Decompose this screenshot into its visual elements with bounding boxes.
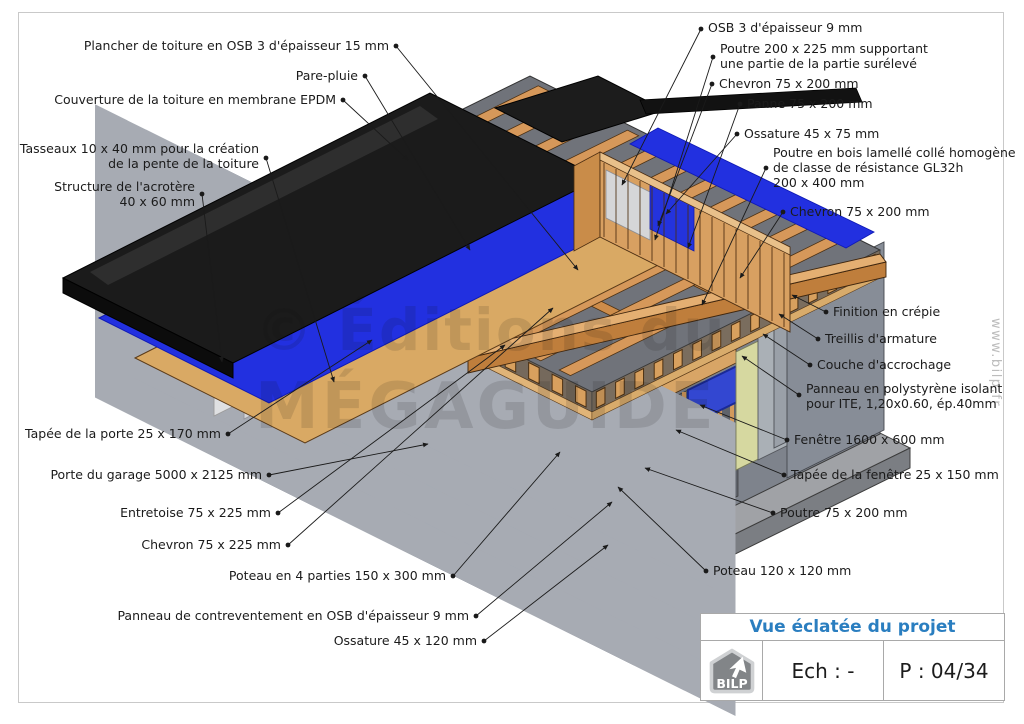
label-couverture-epdm: Couverture de la toiture en membrane EPD… [54,92,336,107]
label-chevron-75-225: Chevron 75 x 225 mm [141,537,281,552]
scale-value: Ech : - [763,641,884,700]
label-acrotere: Structure de l'acrotère 40 x 60 mm [54,179,195,209]
label-poutre-gl32h: Poutre en bois lamellé collé homogène de… [773,145,1016,190]
label-poutre-75-200: Poutre 75 x 200 mm [780,505,908,520]
label-contreventement: Panneau de contreventement en OSB d'épai… [117,608,469,623]
drawing-title: Vue éclatée du projet [701,614,1004,641]
svg-text:BILP: BILP [716,675,747,690]
label-couche-accrochage: Couche d'accrochage [817,357,951,372]
label-panne: Panne 75 x 200 mm [747,96,873,111]
label-fenetre: Fenêtre 1600 x 600 mm [794,432,945,447]
title-block: Vue éclatée du projet BILP Ech : - P : 0… [700,613,1005,701]
label-ossature-45-75: Ossature 45 x 75 mm [744,126,879,141]
label-osb-9: OSB 3 d'épaisseur 9 mm [708,20,862,35]
svg-text:MÉGAGUIDE: MÉGAGUIDE [255,368,717,444]
label-finition-crepie: Finition en crépie [833,304,940,319]
label-poutre-200-225: Poutre 200 x 225 mm supportant une parti… [720,41,928,71]
label-ossature-45-120: Ossature 45 x 120 mm [334,633,477,648]
bilp-logo: BILP [701,641,763,700]
label-porte-garage: Porte du garage 5000 x 2125 mm [50,467,262,482]
center-watermark: © Éditions du MÉGAGUIDE [255,295,726,444]
bilp-logo-icon: BILP [707,646,757,696]
label-entretoise: Entretoise 75 x 225 mm [120,505,271,520]
label-tapee-porte: Tapée de la porte 25 x 170 mm [25,426,221,441]
label-chevron-75-200-a: Chevron 75 x 200 mm [719,76,859,91]
label-treillis: Treillis d'armature [825,331,937,346]
label-poteau-4-parties: Poteau en 4 parties 150 x 300 mm [229,568,446,583]
label-tasseaux: Tasseaux 10 x 40 mm pour la création de … [20,141,259,171]
label-chevron-75-200-b: Chevron 75 x 200 mm [790,204,930,219]
label-poteau-120: Poteau 120 x 120 mm [713,563,851,578]
plan-page: © Éditions du MÉGAGUIDE [0,0,1024,724]
label-tapee-fenetre: Tapée de la fenêtre 25 x 150 mm [791,467,999,482]
label-polystyrene: Panneau en polystyrène isolant pour ITE,… [806,381,1002,411]
page-number: P : 04/34 [884,641,1004,700]
label-plancher-toiture: Plancher de toiture en OSB 3 d'épaisseur… [84,38,389,53]
label-pare-pluie: Pare-pluie [296,68,358,83]
